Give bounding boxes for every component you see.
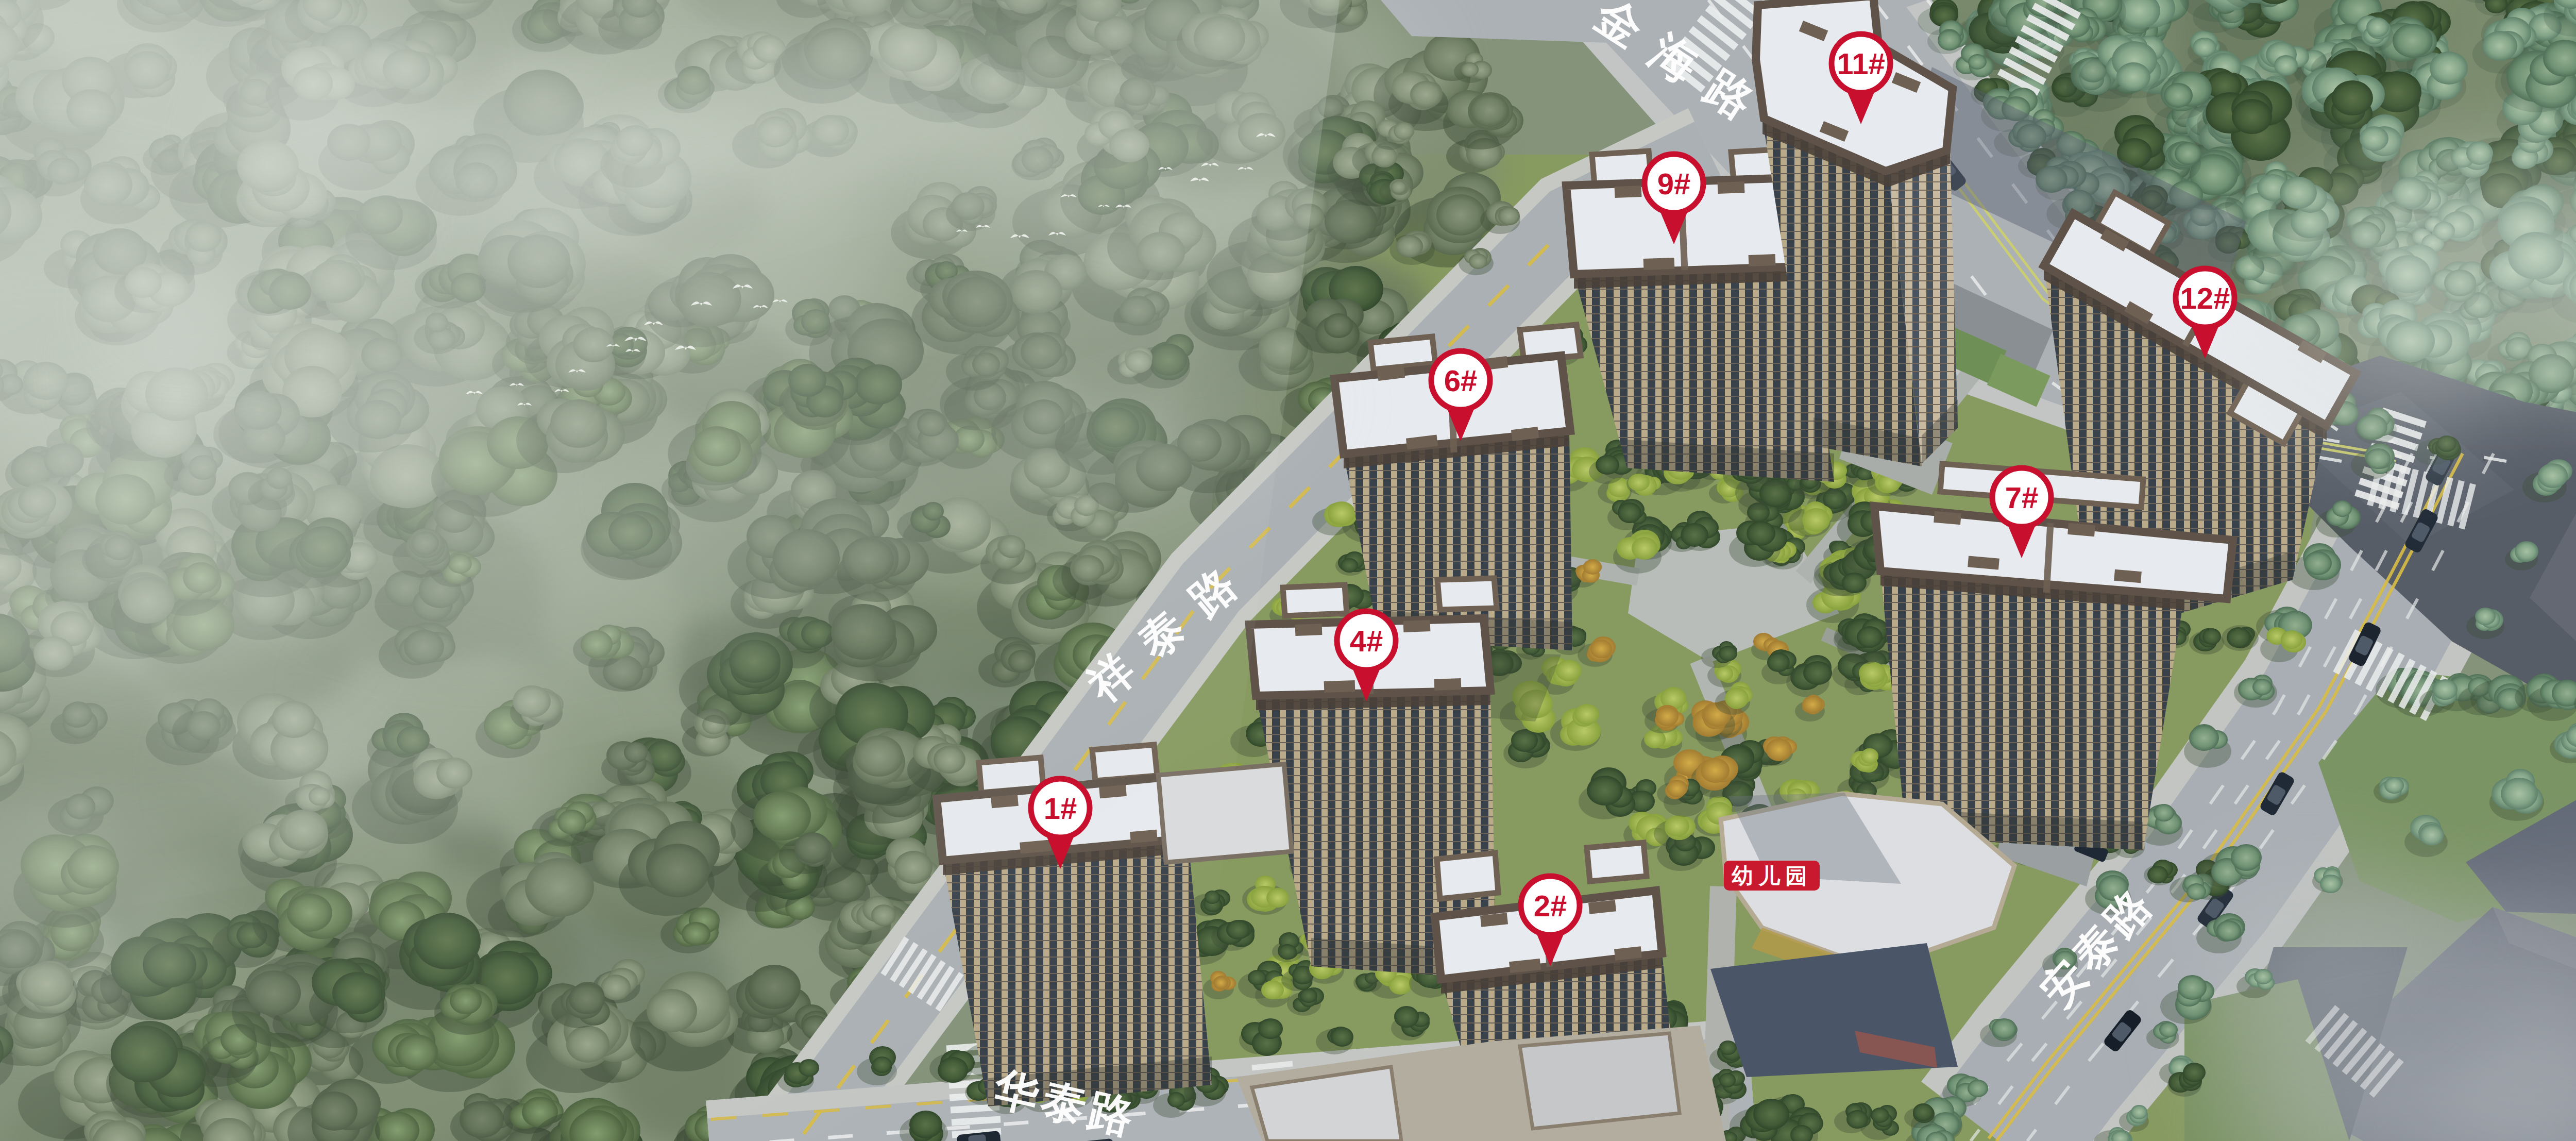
svg-text:11#: 11# [1837, 47, 1885, 80]
svg-text:7#: 7# [2005, 481, 2039, 514]
svg-text:2#: 2# [1534, 889, 1567, 922]
svg-text:4#: 4# [1350, 624, 1383, 658]
svg-text:1#: 1# [1044, 792, 1077, 825]
svg-text:9#: 9# [1657, 167, 1691, 200]
svg-text:幼儿园: 幼儿园 [1732, 864, 1812, 888]
svg-text:6#: 6# [1444, 364, 1478, 397]
svg-text:12#: 12# [2180, 281, 2230, 315]
